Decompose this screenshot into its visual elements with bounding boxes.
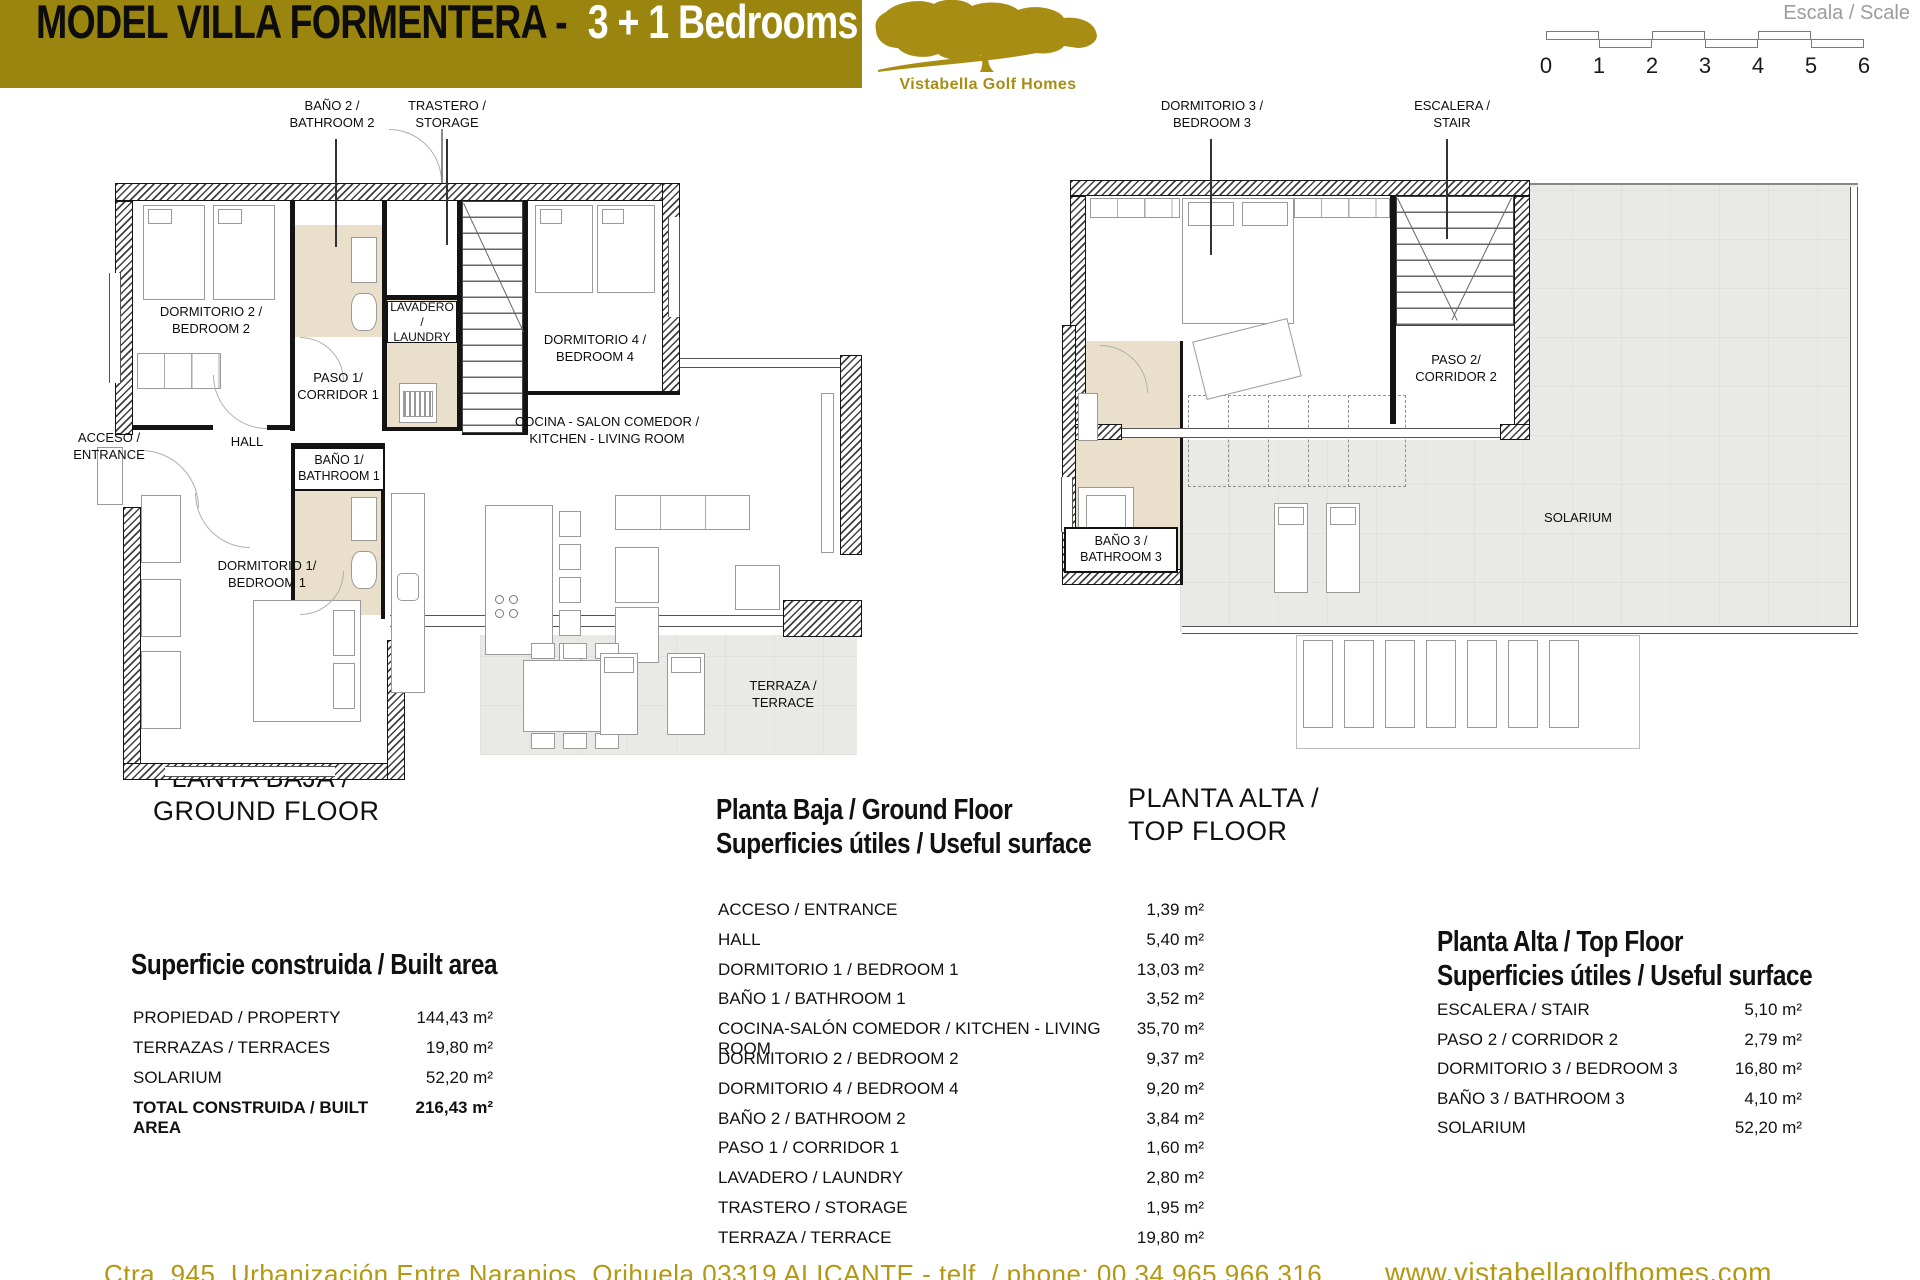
leader-line [1446,139,1448,239]
room-label-corridor1: PASO 1/ CORRIDOR 1 [297,369,379,403]
table-row-total: TOTAL CONSTRUIDA / BUILT AREA 216,43 m² [133,1098,493,1128]
scale-segment [1599,39,1652,48]
row-label: PASO 2 / CORRIDOR 2 [1437,1030,1618,1050]
callout-bedroom3: DORMITORIO 3 / BEDROOM 3 [1161,97,1263,131]
scale-segment [1758,31,1811,40]
pergola-beam [1385,640,1415,728]
title-bedrooms: 3 + 1 Bedrooms [588,0,858,48]
pergola-beam [1426,640,1456,728]
vistabella-logo: Vistabella Golf Homes [868,0,1108,100]
row-label: BAÑO 2 / BATHROOM 2 [718,1109,906,1129]
scale-tick-3: 3 [1693,53,1717,79]
toilet [351,293,377,331]
pergola-beam [1344,640,1374,728]
row-value: 3,84 m² [1146,1109,1204,1129]
row-value: 1,60 m² [1146,1138,1204,1158]
scale-label: Escala / Scale [1740,2,1910,25]
armchair [615,547,659,603]
row-value: 5,10 m² [1744,1000,1802,1020]
row-label: PROPIEDAD / PROPERTY [133,1008,341,1028]
row-label: BAÑO 3 / BATHROOM 3 [1437,1089,1625,1109]
washing-machine-front [403,391,433,417]
ground-surface-table: ACCESO / ENTRANCE1,39 m² HALL5,40 m² DOR… [718,900,1204,1258]
row-label: TERRAZAS / TERRACES [133,1038,330,1058]
row-label: TERRAZA / TERRACE [718,1228,892,1248]
lounger-headrest [604,657,634,673]
scale-segment [1652,31,1705,40]
scale-segment [1811,39,1864,48]
bar-stool [559,610,581,636]
pillow [218,209,242,224]
closet [137,353,221,389]
room-label-solarium: SOLARIUM [1544,509,1612,526]
pillow [602,209,624,224]
sofa [615,495,750,530]
row-value: 3,52 m² [1146,989,1204,1009]
room-label-bedroom1: DORMITORIO 1/ BEDROOM 1 [218,557,317,591]
row-label: PASO 1 / CORRIDOR 1 [718,1138,899,1158]
wall [123,507,141,780]
leader-line [446,139,448,245]
window [165,766,335,777]
door-leaf [441,129,443,183]
dashed-line [1308,395,1309,487]
closet [141,579,181,637]
row-value: 9,37 m² [1146,1049,1204,1069]
leader-line [335,139,337,247]
ground-floor-plan: BAÑO 2 / BATHROOM 2 TRASTERO / STORAGE T… [95,95,905,795]
row-value: 9,20 m² [1146,1079,1204,1099]
wall [115,183,680,201]
row-label: HALL [718,930,761,950]
room-label-bathroom1: BAÑO 1/ BATHROOM 1 [293,447,385,491]
closet [141,651,181,729]
row-value: 4,10 m² [1744,1089,1802,1109]
plan-sheet: MODEL VILLA FORMENTERA - 3 + 1 Bedrooms … [0,0,1920,1280]
wall [1070,180,1530,196]
table-row: SOLARIUM 52,20 m² [133,1068,493,1098]
kitchen-sink [397,573,419,601]
wall [267,425,295,430]
coffee-table [735,565,780,610]
golf-tree-icon [868,0,1108,78]
leader-line [1210,139,1212,255]
chair [531,643,555,659]
wall [133,425,213,430]
bar-stool [559,577,581,603]
pillow [148,209,172,224]
wall [840,355,862,555]
table-row: DORMITORIO 4 / BEDROOM 49,20 m² [718,1079,1204,1109]
dashed-line [1348,395,1349,487]
tv-bench [821,393,834,553]
scale-tick-1: 1 [1587,53,1611,79]
title-bar: MODEL VILLA FORMENTERA - 3 + 1 Bedrooms [0,0,862,88]
scale-tick-2: 2 [1640,53,1664,79]
table-row: DORMITORIO 3 / BEDROOM 316,80 m² [1437,1059,1802,1089]
footer-website[interactable]: www.vistabellagolfhomes.com [1385,1257,1772,1280]
table-row: BAÑO 1 / BATHROOM 13,52 m² [718,989,1204,1019]
room-label-laundry: LAVADERO / LAUNDRY [387,301,457,343]
row-value: 16,80 m² [1735,1059,1802,1079]
footer-address: Ctra. 945, Urbanización Entre Naranjos, … [104,1259,1322,1280]
wall [523,201,528,435]
vanity [351,237,377,283]
row-value: 5,40 m² [1146,930,1204,950]
logo-name: Vistabella Golf Homes [868,76,1108,94]
row-label: ACCESO / ENTRANCE [718,900,897,920]
wall [387,427,461,431]
room-label-corridor2: PASO 2/ CORRIDOR 2 [1415,351,1497,385]
room-label-bedroom4: DORMITORIO 4 / BEDROOM 4 [544,331,646,365]
window [668,217,680,317]
room-label-terrace: TERRAZA / TERRACE [749,677,816,711]
callout-bathroom2: BAÑO 2 / BATHROOM 2 [290,97,375,131]
built-area-title: Superficie construida / Built area [131,948,497,982]
pergola-beam [1549,640,1579,728]
table-row: PROPIEDAD / PROPERTY 144,43 m² [133,1008,493,1038]
pergola-beam [1303,640,1333,728]
pillow [540,209,562,224]
wardrobe [1294,198,1390,218]
wall [1180,341,1183,585]
scale-tick-6: 6 [1852,53,1876,79]
room-label-kitchen: COCINA - SALON COMEDOR / KITCHEN - LIVIN… [515,413,699,447]
chair [563,643,587,659]
cooktop-burner [495,609,504,618]
table-row: BAÑO 3 / BATHROOM 34,10 m² [1437,1089,1802,1119]
bar-stool [559,511,581,537]
row-value: 2,79 m² [1744,1030,1802,1050]
callout-storage: TRASTERO / STORAGE [408,97,486,131]
scale-tick-4: 4 [1746,53,1770,79]
chair [531,733,555,749]
pillow [1242,202,1288,226]
row-label: DORMITORIO 2 / BEDROOM 2 [718,1049,959,1069]
table-row: LAVADERO / LAUNDRY2,80 m² [718,1168,1204,1198]
table-row: ESCALERA / STAIR5,10 m² [1437,1000,1802,1030]
door-arc [141,450,199,508]
dashed-line [1268,395,1269,487]
parapet [1850,187,1858,633]
top-surface-table: ESCALERA / STAIR5,10 m² PASO 2 / CORRIDO… [1437,1000,1802,1148]
top-floor-plan: DORMITORIO 3 / BEDROOM 3 ESCALERA / STAI… [1060,95,1870,795]
cooktop-burner [509,609,518,618]
top-table-title: Planta Alta / Top Floor Superficies útil… [1437,925,1812,993]
scale-bar: 0 1 2 3 4 5 6 [1546,31,1868,49]
table-row: HALL5,40 m² [718,930,1204,960]
table-row: SOLARIUM52,20 m² [1437,1118,1802,1148]
door-arc [389,129,442,182]
vanity [1078,393,1098,441]
row-value: 2,80 m² [1146,1168,1204,1188]
window [1061,477,1073,532]
row-value: 19,80 m² [426,1038,493,1058]
row-value: 35,70 m² [1137,1019,1204,1039]
row-value: 13,03 m² [1137,960,1204,980]
wall [783,600,862,637]
parapet [1530,183,1858,185]
chair [595,733,619,749]
pergola-beam [1467,640,1497,728]
row-value: 216,43 m² [416,1098,494,1118]
wall [1500,424,1530,440]
row-label: TRASTERO / STORAGE [718,1198,908,1218]
lounger-headrest [1330,507,1356,525]
row-value: 52,20 m² [426,1068,493,1088]
table-row: BAÑO 2 / BATHROOM 23,84 m² [718,1109,1204,1139]
wardrobe [1090,198,1180,218]
cooktop-burner [495,595,504,604]
row-label: DORMITORIO 1 / BEDROOM 1 [718,960,959,980]
room-label-entrance: ACCESO / ENTRANCE [73,429,145,463]
table-row: ACCESO / ENTRANCE1,39 m² [718,900,1204,930]
table-row: DORMITORIO 1 / BEDROOM 113,03 m² [718,960,1204,990]
bar-stool [559,544,581,570]
row-label: SOLARIUM [133,1068,222,1088]
wall [1514,196,1530,440]
scale-tick-0: 0 [1534,53,1558,79]
built-area-table: PROPIEDAD / PROPERTY 144,43 m² TERRAZAS … [133,1008,493,1128]
stairs [462,201,523,433]
door-arc [213,375,267,429]
row-value: 19,80 m² [1137,1228,1204,1248]
dashed-roof-outline [1188,395,1406,487]
row-value: 1,39 m² [1146,900,1204,920]
window [109,273,121,383]
table-row: TERRAZAS / TERRACES 19,80 m² [133,1038,493,1068]
toilet [351,551,377,589]
room-label-bedroom2: DORMITORIO 2 / BEDROOM 2 [160,303,262,337]
row-label: SOLARIUM [1437,1118,1526,1138]
chair [563,733,587,749]
title-model: MODEL VILLA FORMENTERA - [36,0,577,48]
lounger-headrest [671,657,701,673]
room-label-bathroom3: BAÑO 3 / BATHROOM 3 [1064,527,1178,573]
scale-segment [1705,39,1758,48]
row-value: 1,95 m² [1146,1198,1204,1218]
stairs [1396,196,1514,326]
wall [528,391,680,395]
table-row: TERRAZA / TERRACE19,80 m² [718,1228,1204,1258]
table-row: TRASTERO / STORAGE1,95 m² [718,1198,1204,1228]
row-label: BAÑO 1 / BATHROOM 1 [718,989,906,1009]
vanity [351,497,377,541]
scale-tick-5: 5 [1799,53,1823,79]
row-value: 144,43 m² [416,1008,493,1028]
window [390,615,783,627]
pillow [333,663,355,709]
row-label: DORMITORIO 3 / BEDROOM 3 [1437,1059,1678,1079]
row-value: 52,20 m² [1735,1118,1802,1138]
kitchen-island [485,505,553,655]
window [1122,428,1500,438]
scale-segment [1546,31,1599,40]
row-label: TOTAL CONSTRUIDA / BUILT AREA [133,1098,416,1138]
row-label: LAVADERO / LAUNDRY [718,1168,903,1188]
wall [290,201,295,431]
table-row: PASO 2 / CORRIDOR 22,79 m² [1437,1030,1802,1060]
callout-stair: ESCALERA / STAIR [1414,97,1490,131]
table-row: COCINA-SALÓN COMEDOR / KITCHEN - LIVING … [718,1019,1204,1049]
dashed-line [1228,395,1229,487]
lounger-headrest [1278,507,1304,525]
cooktop-burner [509,595,518,604]
row-label: ESCALERA / STAIR [1437,1000,1590,1020]
room-label-hall: HALL [231,433,264,450]
page-title: MODEL VILLA FORMENTERA - 3 + 1 Bedrooms [36,0,858,49]
pergola-beam [1508,640,1538,728]
ground-table-title: Planta Baja / Ground Floor Superficies ú… [716,793,1091,861]
top-floor-heading: PLANTA ALTA / TOP FLOOR [1128,782,1319,848]
row-label: DORMITORIO 4 / BEDROOM 4 [718,1079,959,1099]
door-arc [195,493,250,548]
pillow [333,610,355,656]
table-row: PASO 1 / CORRIDOR 11,60 m² [718,1138,1204,1168]
parapet [1182,626,1858,634]
window [680,358,840,368]
